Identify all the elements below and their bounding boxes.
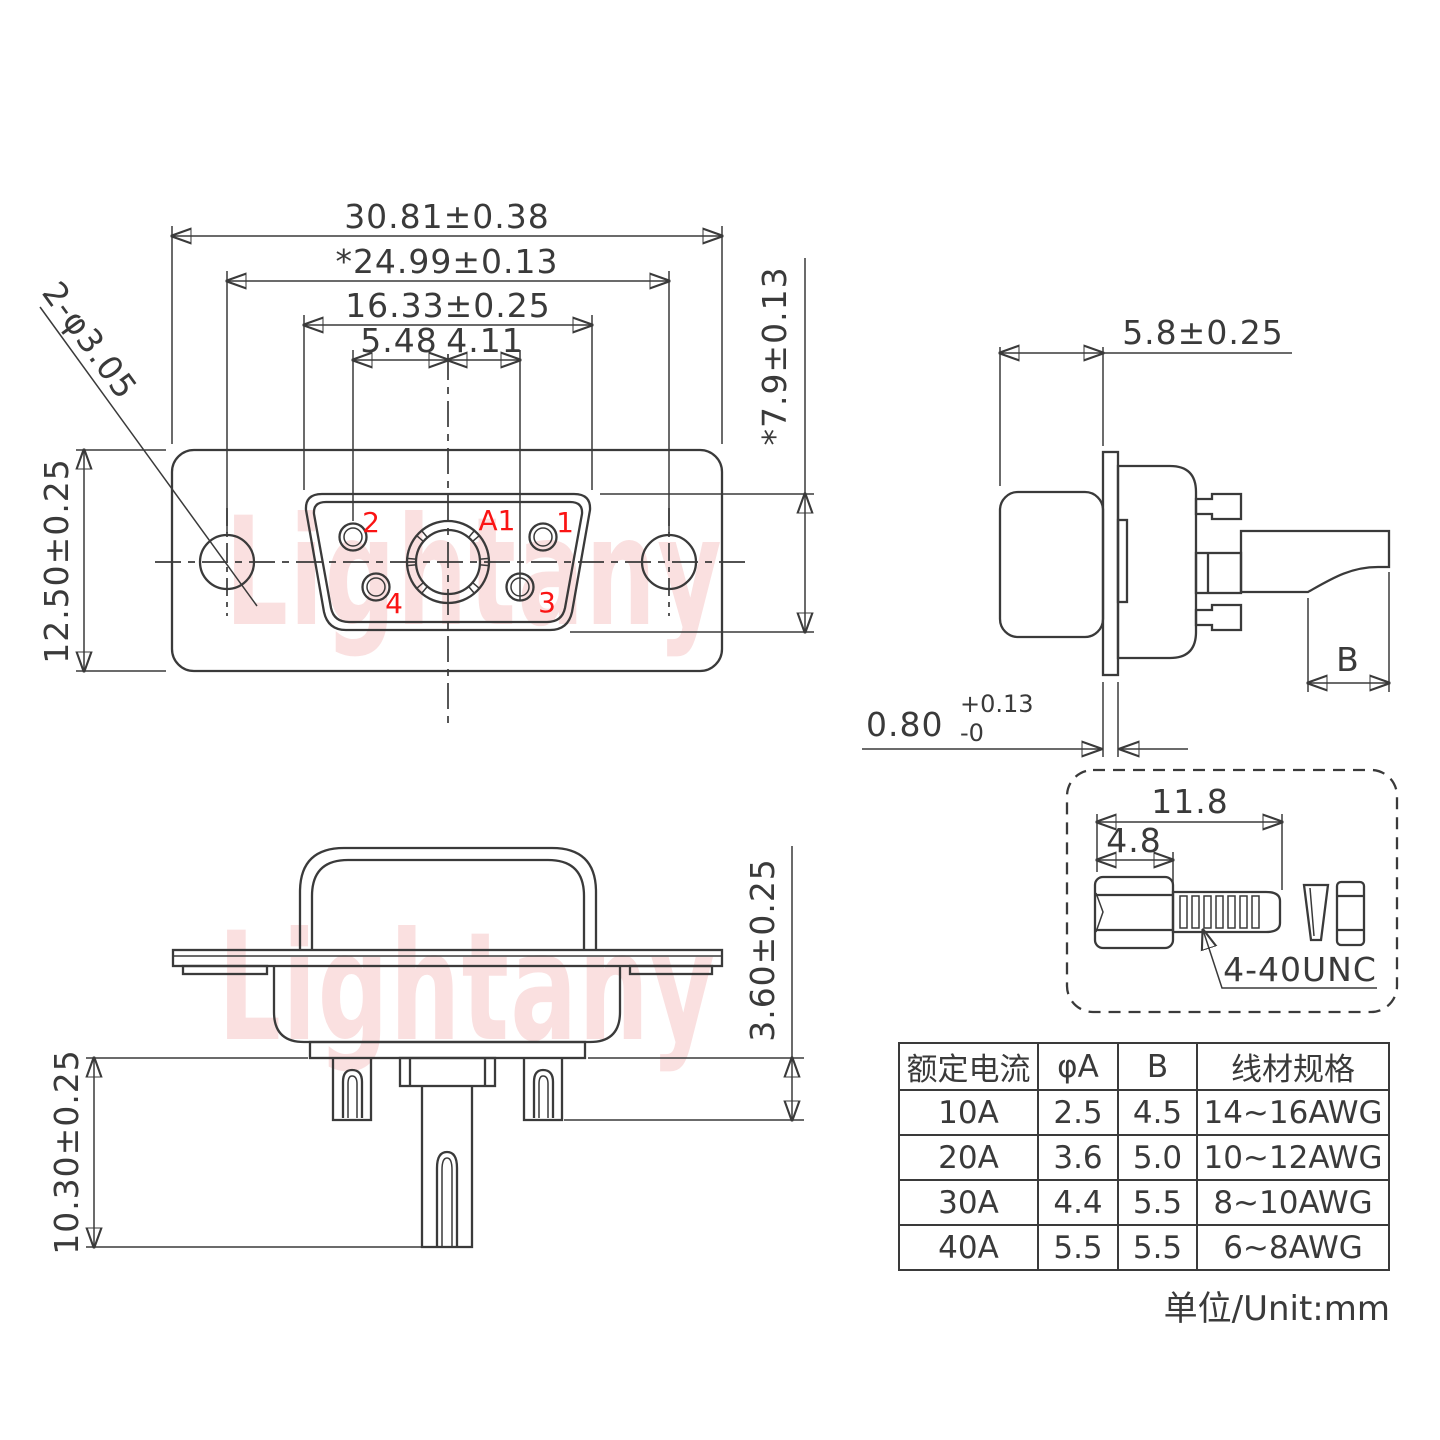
side-a1-barrel	[1196, 553, 1241, 593]
header-wire-gauge: 线材规格	[1197, 1043, 1389, 1090]
dim-tol-minus: -0	[960, 719, 984, 747]
unit-label: 单位/Unit:mm	[1150, 1281, 1390, 1330]
pin-label-4: 4	[385, 587, 403, 620]
side-body-recess	[1118, 520, 1127, 602]
bottom-flange-bar	[173, 950, 722, 966]
table-cell: 20A	[899, 1135, 1038, 1180]
bottom-a1-pin	[437, 1152, 457, 1247]
bottom-contact-right-pin-inner	[539, 1076, 548, 1118]
dim-text-holes: 2-φ3.05	[34, 274, 145, 406]
side-pin-bottom	[1196, 605, 1241, 630]
dim-text-4-11: 4.11	[446, 321, 523, 360]
table-cell: 14~16AWG	[1197, 1090, 1389, 1135]
table-cell: 2.5	[1038, 1090, 1118, 1135]
pin-label-1: 1	[556, 506, 574, 539]
dim-text-5-48: 5.48	[360, 321, 437, 360]
header-rated-current: 额定电流	[899, 1043, 1038, 1090]
side-view: 5.8±0.25 0.80 +0.13 -0 B	[862, 313, 1389, 757]
dim-text-b: B	[1336, 640, 1360, 679]
dim-10-30	[86, 1058, 424, 1247]
bottom-a1-barrel	[422, 1086, 472, 1247]
table-cell: 3.6	[1038, 1135, 1118, 1180]
bottom-a1-collar	[400, 1058, 495, 1086]
dim-text-30-81: 30.81±0.38	[344, 197, 550, 236]
bottom-contact-left-pin-inner	[348, 1076, 357, 1118]
drawing-canvas: Lightany Lightany	[0, 0, 1440, 1440]
dim-tol-plus: +0.13	[960, 690, 1034, 718]
front-view: 2 A1 1 4 3 30.81±0.38 *24.99±0.13	[34, 197, 814, 728]
bottom-wafer	[310, 1042, 585, 1058]
dim-text-12-50: 12.50±0.25	[37, 458, 76, 664]
table-cell: 40A	[899, 1225, 1038, 1270]
bottom-step-left	[183, 966, 267, 974]
table-cell: 4.4	[1038, 1180, 1118, 1225]
dim-12-50	[76, 450, 166, 671]
dim-text-24-99: *24.99±0.13	[335, 242, 558, 281]
table-row: 20A 3.6 5.0 10~12AWG	[899, 1135, 1389, 1180]
table-cell: 4.5	[1118, 1090, 1197, 1135]
dim-text-0-80: 0.80	[866, 705, 943, 744]
nut-part	[1337, 882, 1364, 945]
dim-text-4-8: 4.8	[1106, 821, 1161, 860]
header-b: B	[1118, 1043, 1197, 1090]
bottom-cap-inner	[312, 860, 584, 950]
pin-label-3: 3	[538, 586, 556, 619]
side-flange	[1103, 452, 1118, 675]
screw-detail: 11.8 4.8 4-40UNC	[1067, 770, 1397, 1012]
side-body	[1118, 466, 1196, 658]
spec-table-header-row: 额定电流 φA B 线材规格	[899, 1043, 1389, 1090]
bottom-body	[274, 966, 620, 1042]
dim-text-16-33: 16.33±0.25	[345, 286, 551, 325]
table-cell: 10~12AWG	[1197, 1135, 1389, 1180]
bottom-contact-left	[333, 1058, 371, 1120]
side-wire-barrel	[1241, 531, 1389, 592]
table-cell: 5.5	[1118, 1180, 1197, 1225]
screw-shaft	[1173, 892, 1280, 932]
spec-table: 额定电流 φA B 线材规格 10A 2.5 4.5 14~16AWG 20A …	[898, 1042, 1390, 1271]
side-pin-top	[1196, 494, 1241, 519]
table-row: 10A 2.5 4.5 14~16AWG	[899, 1090, 1389, 1135]
table-cell: 10A	[899, 1090, 1038, 1135]
dim-text-7-9: *7.9±0.13	[755, 266, 794, 445]
thread-label: 4-40UNC	[1223, 950, 1377, 989]
screw-head	[1095, 877, 1173, 948]
table-cell: 30A	[899, 1180, 1038, 1225]
dim-text-11-8: 11.8	[1151, 782, 1228, 821]
dim-text-10-30: 10.30±0.25	[47, 1049, 86, 1255]
bottom-cap-outer	[300, 848, 596, 950]
table-cell: 8~10AWG	[1197, 1180, 1389, 1225]
bottom-contact-left-pin	[343, 1070, 362, 1118]
table-cell: 5.5	[1038, 1225, 1118, 1270]
bottom-step-right	[630, 966, 712, 974]
table-cell: 5.0	[1118, 1135, 1197, 1180]
bottom-contact-right-pin	[534, 1070, 553, 1118]
bottom-a1-pin-inner	[442, 1158, 452, 1247]
table-row: 30A 4.4 5.5 8~10AWG	[899, 1180, 1389, 1225]
dim-text-3-60: 3.60±0.25	[743, 858, 782, 1042]
screw-head-chamfer	[1096, 893, 1103, 932]
dim-text-5-8: 5.8±0.25	[1122, 313, 1284, 352]
pin-label-2: 2	[362, 506, 380, 539]
screw-threads	[1180, 896, 1259, 928]
wedge-part	[1304, 885, 1328, 940]
table-row: 40A 5.5 5.5 6~8AWG	[899, 1225, 1389, 1270]
bottom-view: 10.30±0.25 3.60±0.25	[47, 846, 804, 1255]
table-cell: 5.5	[1118, 1225, 1197, 1270]
bottom-contact-right	[524, 1058, 562, 1120]
table-cell: 6~8AWG	[1197, 1225, 1389, 1270]
pin-label-a1: A1	[479, 504, 516, 537]
header-phi-a: φA	[1038, 1043, 1118, 1090]
side-shell	[1000, 492, 1103, 637]
